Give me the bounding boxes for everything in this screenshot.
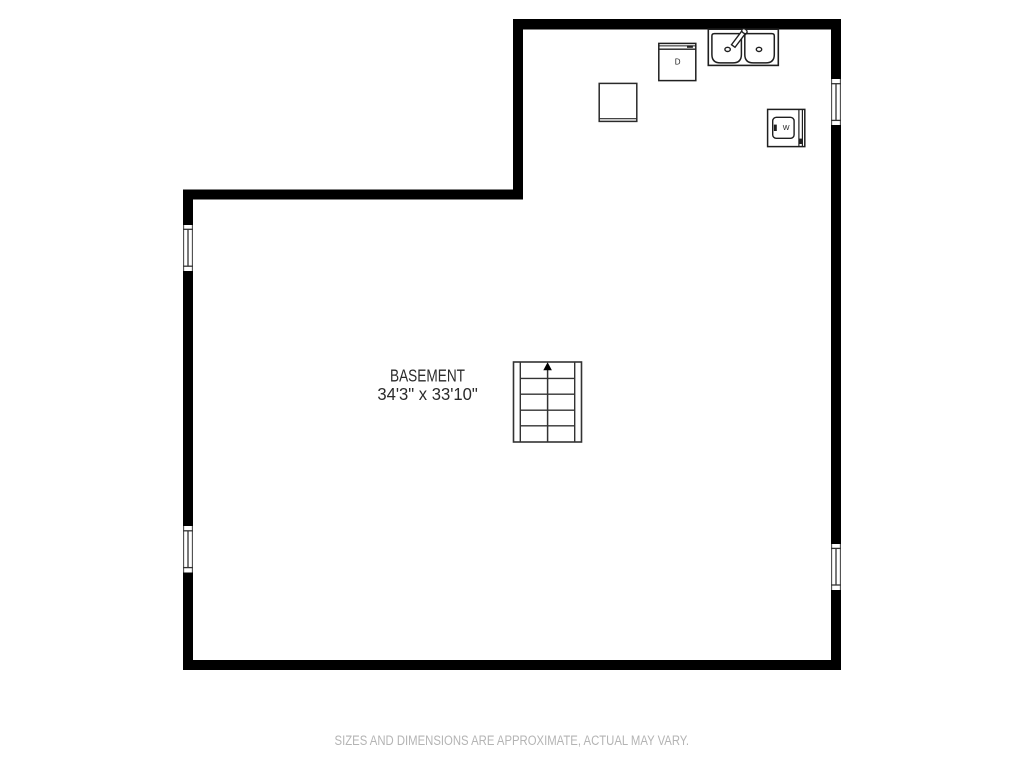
svg-text:W: W [783, 123, 790, 132]
svg-text:34'3" x 33'10": 34'3" x 33'10" [377, 384, 478, 404]
svg-text:BASEMENT: BASEMENT [390, 365, 465, 385]
svg-text:D: D [675, 58, 681, 67]
svg-text:SIZES AND DIMENSIONS ARE APPRO: SIZES AND DIMENSIONS ARE APPROXIMATE, AC… [335, 733, 690, 749]
